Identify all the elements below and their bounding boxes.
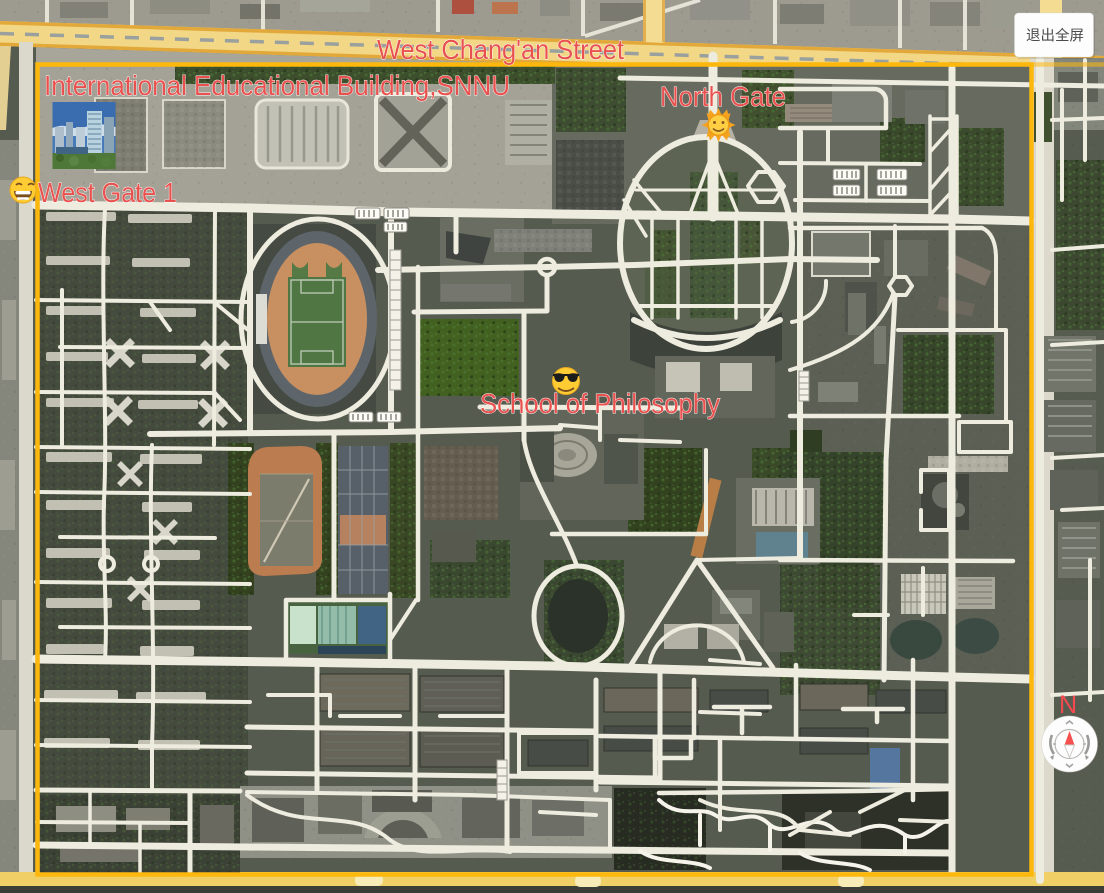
svg-text:West Gate 1: West Gate 1 [38, 177, 177, 208]
svg-text:International Educational Buil: International Educational Building,SNNU [44, 70, 510, 101]
svg-text:North Gate: North Gate [660, 81, 786, 112]
svg-text:West Chang'an Street: West Chang'an Street [377, 34, 624, 65]
svg-text:退出全屏: 退出全屏 [1026, 27, 1084, 45]
svg-text:School of Philosophy: School of Philosophy [480, 388, 720, 419]
svg-text:N: N [1059, 691, 1077, 719]
